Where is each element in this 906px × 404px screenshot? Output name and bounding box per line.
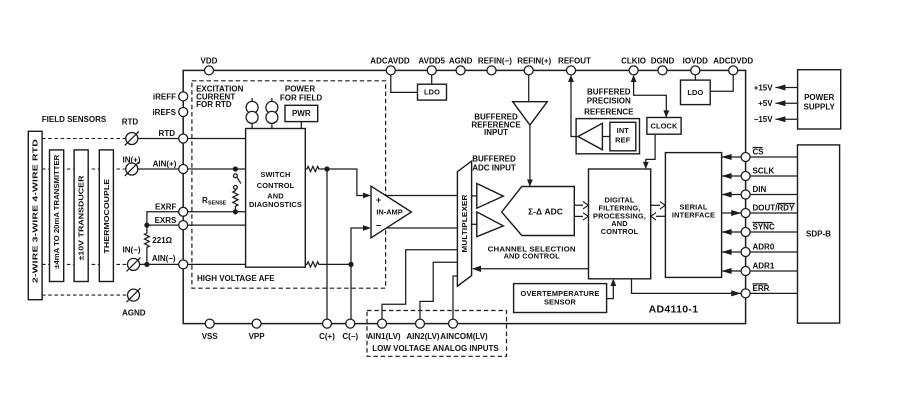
svg-text:2-WIRE 3-WIRE 4-WIRE RTD: 2-WIRE 3-WIRE 4-WIRE RTD — [31, 138, 40, 283]
svg-text:BUFFERED: BUFFERED — [587, 87, 631, 96]
svg-text:+: + — [376, 195, 381, 205]
svg-text:INTERFACE: INTERFACE — [672, 211, 715, 220]
svg-text:POWER: POWER — [285, 85, 315, 94]
svg-text:SENSE: SENSE — [208, 201, 227, 207]
svg-text:CS: CS — [753, 148, 765, 157]
svg-text:iREFF: iREFF — [153, 92, 176, 101]
svg-text:SYNC: SYNC — [753, 223, 775, 232]
svg-text:±10V TRANSDUCER: ±10V TRANSDUCER — [79, 176, 86, 261]
svg-text:CLOCK: CLOCK — [650, 122, 678, 131]
svg-text:FIELD SENSORS: FIELD SENSORS — [42, 115, 107, 124]
svg-text:LDO: LDO — [687, 88, 703, 97]
svg-text:FOR FIELD: FOR FIELD — [280, 94, 322, 103]
svg-text:PWR: PWR — [292, 109, 311, 118]
svg-text:HIGH VOLTAGE AFE: HIGH VOLTAGE AFE — [197, 274, 275, 283]
svg-text:LDO: LDO — [424, 88, 440, 97]
svg-text:ADR1: ADR1 — [753, 262, 775, 271]
svg-text:CONTROL: CONTROL — [601, 227, 639, 236]
svg-text:ADC INPUT: ADC INPUT — [472, 164, 516, 173]
svg-text:AIN(+): AIN(+) — [153, 160, 177, 169]
svg-text:SUPPLY: SUPPLY — [804, 102, 836, 111]
svg-text:221Ω: 221Ω — [152, 236, 172, 245]
svg-text:INPUT: INPUT — [484, 128, 508, 137]
svg-text:AGND: AGND — [449, 57, 473, 66]
svg-text:SDP-B: SDP-B — [806, 230, 831, 239]
svg-text:C(+): C(+) — [319, 332, 335, 341]
svg-text:IN(−): IN(−) — [123, 246, 141, 255]
svg-text:INT: INT — [617, 126, 630, 135]
svg-text:RTD: RTD — [122, 118, 139, 127]
svg-text:REFOUT: REFOUT — [558, 57, 591, 66]
svg-text:MULTIPLEXER: MULTIPLEXER — [460, 194, 469, 253]
svg-text:IOVDD: IOVDD — [683, 57, 709, 66]
svg-text:AIN1(LV): AIN1(LV) — [367, 332, 401, 341]
svg-text:LOW VOLTAGE ANALOG INPUTS: LOW VOLTAGE ANALOG INPUTS — [372, 344, 499, 353]
svg-text:+15V: +15V — [754, 83, 774, 92]
svg-text:−15V: −15V — [754, 115, 774, 124]
svg-text:ADCDVDD: ADCDVDD — [713, 57, 753, 66]
svg-text:AGND: AGND — [122, 309, 146, 318]
svg-text:ADCAVDD: ADCAVDD — [370, 57, 410, 66]
svg-text:±4mA TO 20mA TRANSMITTER: ±4mA TO 20mA TRANSMITTER — [54, 155, 61, 269]
svg-text:AD4110-1: AD4110-1 — [649, 304, 699, 316]
svg-text:SCLK: SCLK — [753, 167, 775, 176]
svg-text:RTD: RTD — [159, 129, 176, 138]
svg-text:AND CONTROL: AND CONTROL — [504, 252, 561, 261]
svg-text:Σ-Δ ADC: Σ-Δ ADC — [528, 207, 563, 217]
svg-text:CLKIO: CLKIO — [621, 57, 646, 66]
svg-text:AIN2(LV): AIN2(LV) — [406, 332, 440, 341]
svg-text:PRECISION: PRECISION — [587, 97, 631, 106]
svg-text:CONTROL: CONTROL — [257, 181, 295, 190]
svg-text:REFIN(−): REFIN(−) — [478, 57, 512, 66]
svg-text:VDD: VDD — [201, 57, 218, 66]
svg-text:AINCOM(LV): AINCOM(LV) — [440, 332, 488, 341]
svg-text:AVDD5: AVDD5 — [418, 57, 445, 66]
svg-text:DOUT/RDY: DOUT/RDY — [753, 204, 795, 213]
svg-text:SENSOR: SENSOR — [544, 298, 577, 307]
svg-text:SWITCH: SWITCH — [260, 170, 290, 179]
svg-text:VSS: VSS — [202, 332, 219, 341]
svg-text:VPP: VPP — [249, 332, 266, 341]
svg-text:EXRF: EXRF — [155, 203, 176, 212]
svg-text:REFERENCE: REFERENCE — [584, 107, 634, 116]
svg-text:FOR RTD: FOR RTD — [196, 100, 232, 109]
svg-text:AIN(−): AIN(−) — [152, 254, 176, 263]
svg-text:ADR0: ADR0 — [753, 243, 775, 252]
svg-text:DIAGNOSTICS: DIAGNOSTICS — [249, 200, 302, 209]
svg-text:DGND: DGND — [651, 57, 675, 66]
svg-text:IN-AMP: IN-AMP — [376, 208, 402, 217]
svg-text:ERR: ERR — [753, 284, 770, 293]
svg-text:THERMOCOUPLE: THERMOCOUPLE — [104, 179, 111, 254]
svg-text:REF: REF — [615, 136, 631, 145]
svg-text:DIN: DIN — [753, 185, 767, 194]
svg-text:EXRS: EXRS — [155, 216, 177, 225]
svg-text:−: − — [376, 221, 381, 231]
svg-text:REFIN(+): REFIN(+) — [517, 57, 551, 66]
svg-text:iREFS: iREFS — [152, 108, 176, 117]
svg-text:BUFFERED: BUFFERED — [472, 155, 516, 164]
svg-text:C(−): C(−) — [342, 332, 358, 341]
svg-text:+5V: +5V — [758, 99, 773, 108]
svg-text:POWER: POWER — [804, 93, 834, 102]
